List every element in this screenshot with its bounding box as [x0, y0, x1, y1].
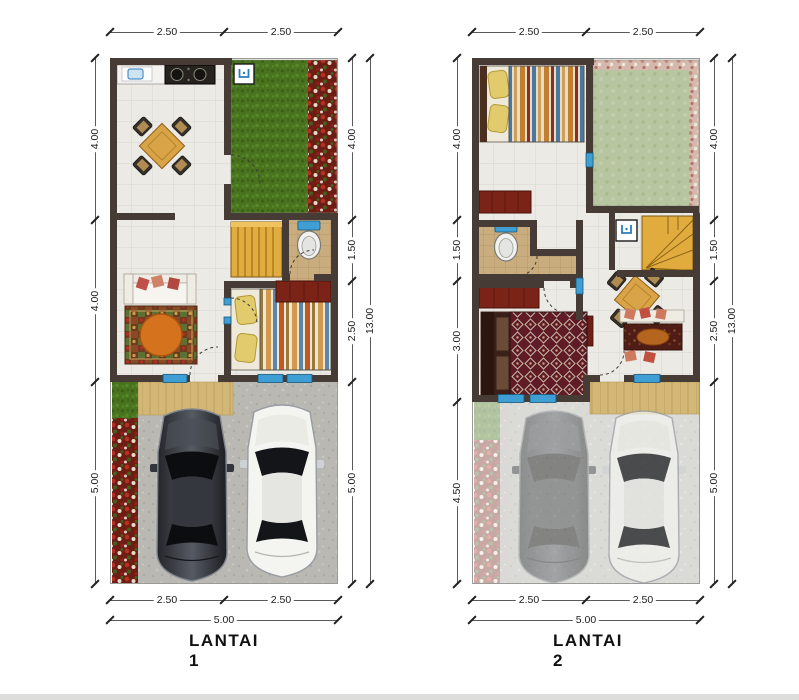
dimension-label: 2.50: [516, 594, 542, 607]
dimension-label: 4.00: [89, 288, 102, 314]
dimension-label: 5.00: [89, 470, 102, 496]
dim-tick: [695, 27, 704, 36]
stairs: [231, 222, 282, 277]
dimension-label: 1.50: [451, 237, 464, 263]
dim-tick: [727, 579, 736, 588]
dimension-label: 2.50: [154, 594, 180, 607]
car-dark-faded: [512, 411, 596, 583]
stairs: [642, 216, 693, 270]
plan-title: LANTAI 1: [189, 631, 259, 671]
dimension-label: 2.50: [630, 594, 656, 607]
dim-tick: [333, 27, 342, 36]
dim-tick: [365, 579, 374, 588]
flower-bed: [308, 60, 337, 213]
rug: [125, 306, 197, 364]
floorplan-canvas: 2.50 2.50 4.00 4.00 5.00 4.00 1.50 2.50 …: [0, 0, 799, 700]
dim-tick: [709, 579, 718, 588]
sofa: [124, 274, 196, 304]
roof-garden: [593, 60, 699, 206]
car-dark: [150, 409, 234, 581]
bottom-border-strip: [0, 694, 799, 700]
plan-drawing-lantai-2: [472, 58, 700, 584]
pillow: [487, 104, 510, 133]
toilet-icon: [495, 223, 518, 261]
flower-strip: [112, 418, 138, 583]
dimension-label: 2.50: [346, 318, 359, 344]
kitchen-counter: [117, 65, 215, 84]
pillow: [234, 333, 257, 363]
dimension-label: 4.50: [451, 480, 464, 506]
dimension-label: 2.50: [268, 26, 294, 39]
dimension-label: 13.00: [364, 305, 377, 337]
dimension-label: 4.00: [708, 126, 721, 152]
stove-icon: [165, 65, 215, 84]
window: [163, 375, 187, 383]
dimension-label: 5.00: [573, 614, 599, 627]
car-white: [240, 405, 324, 577]
grass-strip: [112, 382, 138, 418]
dimension-label: 5.00: [211, 614, 237, 627]
grass-strip: [474, 402, 500, 440]
window: [498, 395, 524, 403]
car-white-faded: [602, 411, 686, 583]
dim-tick: [333, 615, 342, 624]
dresser: [479, 286, 539, 308]
plan-title: LANTAI 2: [553, 631, 623, 671]
pillow: [487, 70, 510, 99]
pillow: [496, 317, 509, 351]
dim-tick: [333, 595, 342, 604]
dimension-label: 2.50: [268, 594, 294, 607]
dim-tick: [452, 579, 461, 588]
dimension-label: 2.50: [630, 26, 656, 39]
dimension-label: 1.50: [346, 237, 359, 263]
dim-tick: [695, 595, 704, 604]
dimension-label: 13.00: [726, 305, 739, 337]
dimension-label: 2.50: [516, 26, 542, 39]
window: [586, 153, 593, 167]
bed-second: [481, 312, 587, 396]
toilet-icon: [298, 221, 321, 259]
window: [530, 395, 556, 403]
terrace: [590, 382, 699, 414]
dimension-label: 4.00: [346, 126, 359, 152]
dimension-label: 2.50: [708, 318, 721, 344]
dimension-label: 5.00: [346, 470, 359, 496]
dresser: [276, 281, 331, 302]
flower-strip: [474, 440, 500, 583]
dimension-label: 1.50: [708, 237, 721, 263]
dimension-label: 5.00: [708, 470, 721, 496]
dresser: [479, 191, 531, 213]
dim-tick: [347, 579, 356, 588]
dimension-label: 4.00: [89, 126, 102, 152]
window: [634, 375, 660, 383]
dim-tick: [90, 579, 99, 588]
door-blue: [576, 278, 583, 294]
bed-master: [480, 66, 584, 142]
dimension-label: 3.00: [451, 328, 464, 354]
window: [287, 375, 312, 383]
washtub-icon: [234, 64, 254, 84]
window: [258, 375, 283, 383]
plan-drawing-lantai-1: [110, 58, 338, 584]
dimension-label: 4.00: [451, 126, 464, 152]
dim-tick: [695, 615, 704, 624]
washtub-icon: [616, 220, 637, 241]
dimension-label: 2.50: [154, 26, 180, 39]
pillow: [496, 356, 509, 390]
